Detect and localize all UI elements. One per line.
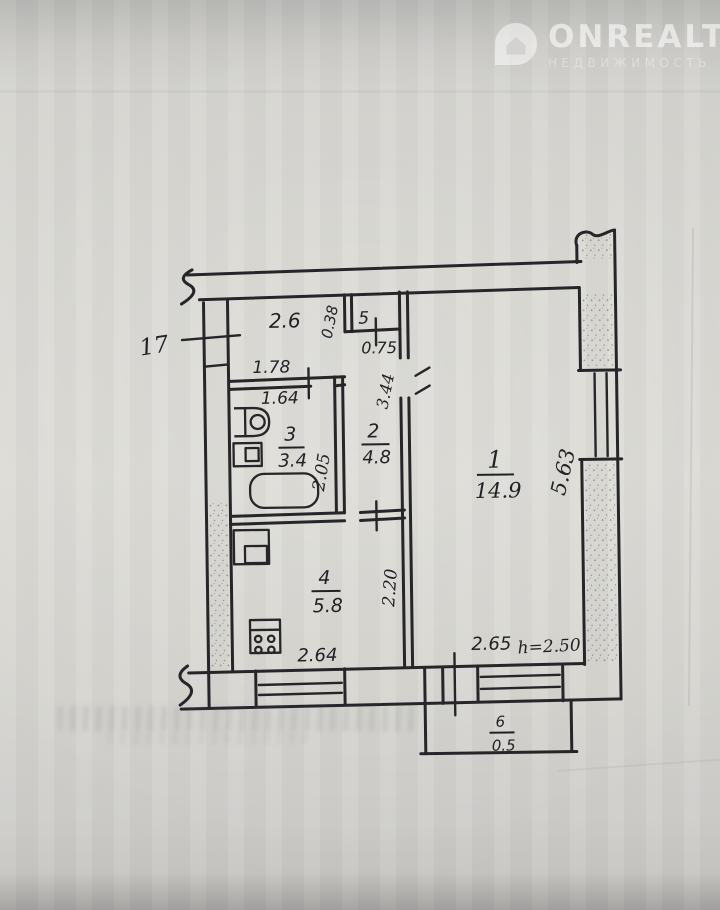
door-mark-room1-a [415,368,429,376]
dim-room1-length: 5.63 [546,447,580,498]
door-mark-room1-b [416,386,430,394]
window-balcony [478,665,563,702]
wall-top-band [181,261,581,304]
dim-bath-depth: 2.05 [309,452,335,494]
room-3-label: 3 3.4 [278,423,307,471]
wall-hall-room1 [399,292,433,667]
room-5-label: 5 0.75 [358,308,397,358]
wall-left-exterior [181,300,245,707]
note-apartment-number: 17 [138,331,171,361]
room-5-number: 5 [358,308,369,328]
room-4-label: 4 5.8 [311,567,343,617]
wall-pier-right [443,667,444,703]
wall-right-exterior [576,230,625,700]
wall-pier-left [425,668,426,704]
room-3-number: 3 [284,423,296,445]
stove [250,620,280,654]
dim-bath-inner-width: 1.64 [261,388,299,409]
bleed-through-text [58,706,418,731]
room-3-area: 3.4 [278,450,307,471]
room-4-number: 4 [318,567,330,589]
room-1-label: 1 14.9 [474,445,522,503]
toilet [234,408,269,436]
dim-bath-outer-width: 1.78 [252,358,290,379]
bathroom-sink [233,443,261,466]
room-6-label: 6 0.5 [489,712,516,754]
floor-plan: 1 14.9 2 4.8 3 3.4 4 5.8 5 0.75 6 0.5 [0,0,720,910]
dim-kitchen-depth: 2.20 [379,568,402,608]
dim-room1-width: 2.65 [471,633,511,655]
wall-rung [204,364,228,366]
dim-hall-top-width: 2.6 [269,308,301,332]
dimension-tick-balcony [454,653,455,715]
paper-scan-band [0,90,720,93]
room-2-label: 2 4.8 [361,420,391,468]
room-1-number: 1 [487,446,503,474]
window-kitchen [256,669,346,707]
room-2-number: 2 [367,420,379,442]
dim-closet-side: 0.38 [318,304,342,340]
bleed-through-text [108,733,308,744]
dim-kitchen-width: 2.64 [297,645,337,667]
kitchen-sink [234,530,269,564]
room-4-area: 5.8 [312,595,343,617]
note-ceiling-height: h=2.50 [517,635,581,658]
paper-bottom-shade [0,872,720,910]
dim-hall-length: 3.44 [373,372,399,411]
room-2-area: 4.8 [362,447,391,468]
room-6-area: 0.5 [492,736,516,754]
room-5-area: 0.75 [361,338,397,357]
room-6-number: 6 [495,713,505,731]
dimension-tick-left-wall [182,335,240,340]
room-1-area: 14.9 [475,478,522,503]
bathtub [250,473,318,508]
